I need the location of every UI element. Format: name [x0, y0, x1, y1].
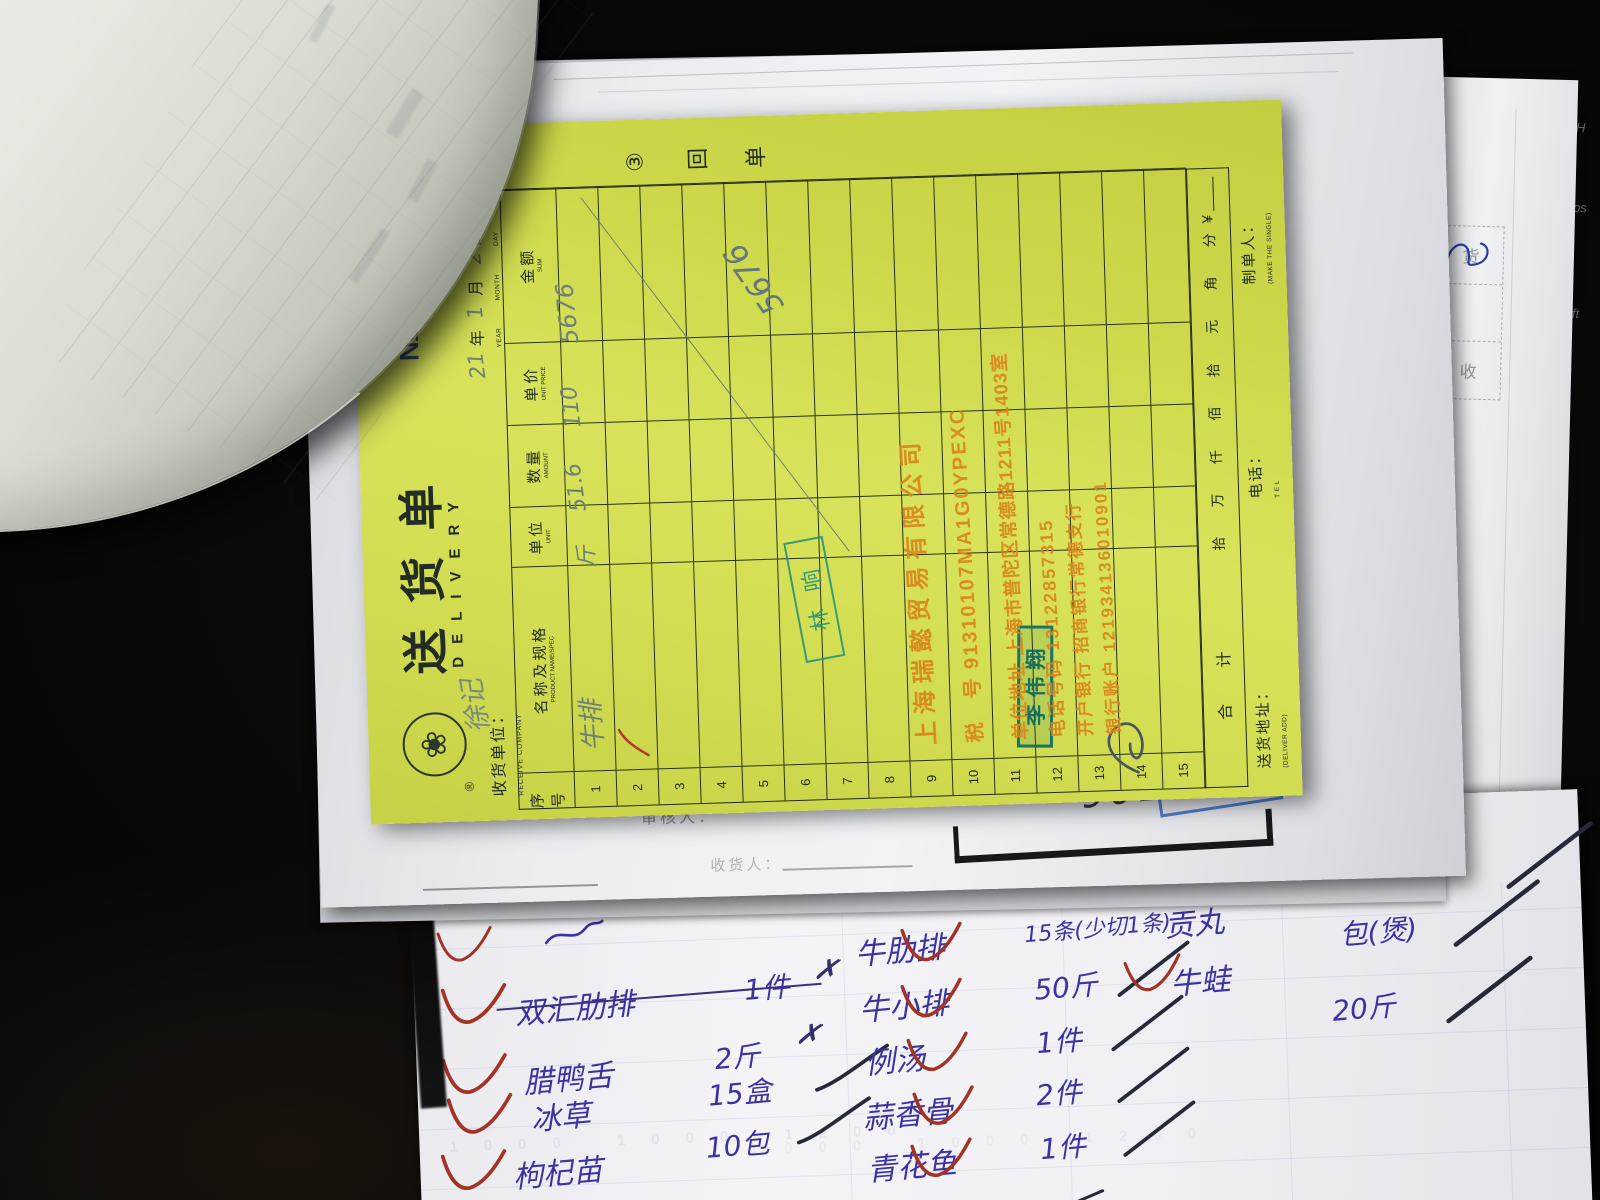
copy-char: 单	[738, 146, 771, 169]
column-header: 金额SUM	[500, 187, 561, 343]
currency-symbol: ¥	[1199, 215, 1216, 224]
list-item-qty: 20斤	[1330, 984, 1397, 1029]
table-cell	[1109, 405, 1154, 488]
company-info-stamp: 上海瑞懿贸易有限公司税 号 91310107MA1G0YPEXC单位地址 上海市…	[875, 234, 1129, 746]
receiver-label: 收货人：	[710, 853, 783, 876]
row-number: 1	[575, 770, 618, 807]
row-number: 2	[617, 768, 660, 805]
table-cell	[690, 418, 735, 501]
row-number: 6	[784, 763, 827, 800]
handwritten-year: 21	[463, 351, 490, 381]
row-number: 12	[1036, 755, 1079, 792]
table-cell	[608, 503, 652, 564]
table-cell	[808, 178, 855, 333]
list-item-qty: 2件	[1034, 1070, 1083, 1114]
list-item-name: 冰草	[529, 1090, 593, 1139]
table-cell	[1107, 323, 1152, 406]
column-header: 单位UNIT	[510, 505, 568, 567]
row-number: 5	[743, 764, 786, 801]
table-cell	[652, 561, 700, 768]
column-header: 单价UNIT PRICE	[505, 341, 564, 425]
row-number: 11	[994, 757, 1037, 794]
table-cell	[1112, 487, 1156, 548]
table-cell	[734, 499, 778, 560]
table-border-fragment	[953, 809, 1274, 864]
handwritten-unit: 斤	[569, 545, 602, 568]
row-number: 7	[826, 762, 869, 799]
registered-mark: ®	[462, 782, 477, 792]
signature-line	[423, 884, 598, 891]
table-cell	[1149, 321, 1194, 404]
table-cell	[732, 417, 777, 500]
row-number: 9	[910, 759, 953, 796]
total-label: 合 计	[1207, 568, 1238, 787]
column-header: 名称及规格PRODUCT NAME/SPEC	[512, 565, 574, 773]
photo-desk-scene: Hpsift 货 收 1000 1000 1200 1000 1000 1200…	[0, 0, 1600, 1200]
table-cell	[771, 333, 816, 416]
row-number: 3	[659, 767, 702, 804]
copy-char: 回	[680, 147, 713, 170]
list-item-qty: 包(煲)	[1338, 907, 1419, 954]
sheet-edge-line	[553, 52, 1353, 80]
row-number: 4	[701, 766, 744, 803]
list-item-qty: 1件	[1034, 1018, 1083, 1062]
table-cell	[694, 560, 742, 767]
row-number: 15	[1162, 751, 1205, 788]
handwritten-sum: 5676	[550, 282, 584, 346]
table-cell	[816, 414, 861, 497]
row-number: 10	[952, 758, 995, 795]
table-cell	[1154, 485, 1198, 546]
table-cell	[813, 332, 858, 415]
table-cell	[598, 185, 645, 340]
list-item-qty: 1件	[1038, 1124, 1087, 1168]
list-item-name: 枸杞苗	[511, 1145, 605, 1197]
copy-number: ③	[622, 152, 649, 173]
table-cell	[648, 419, 693, 502]
table-cell	[1144, 168, 1191, 323]
table-cell	[640, 183, 687, 338]
table-cell	[692, 500, 736, 561]
table-cell	[736, 559, 784, 766]
handwritten-month: 1	[462, 304, 488, 321]
blank-amount-line	[1201, 177, 1214, 211]
table-cell	[1151, 403, 1196, 486]
table-cell	[687, 336, 732, 419]
row-number: 8	[868, 760, 911, 797]
column-header: 数量AMOUNT	[508, 423, 567, 507]
handwritten-price: 110	[557, 385, 587, 430]
signature-line	[782, 865, 912, 871]
list-item-qty: 10包	[704, 1121, 771, 1166]
table-cell	[774, 415, 819, 498]
column-header: 序号	[519, 771, 576, 809]
table-cell	[1102, 169, 1149, 324]
list-item-qty: 50斤	[1032, 963, 1099, 1008]
table-cell	[729, 335, 774, 418]
handwritten-receive-company: 徐记	[449, 676, 497, 736]
handwritten-product: 牛排	[570, 698, 611, 753]
table-cell	[650, 501, 694, 562]
table-cell	[603, 339, 648, 422]
table-cell	[606, 421, 651, 504]
list-item-qty: 15盒	[706, 1069, 773, 1114]
table-cell	[645, 337, 690, 420]
amount-unit-digits: 拾万仟佰拾元角分	[1198, 223, 1229, 569]
